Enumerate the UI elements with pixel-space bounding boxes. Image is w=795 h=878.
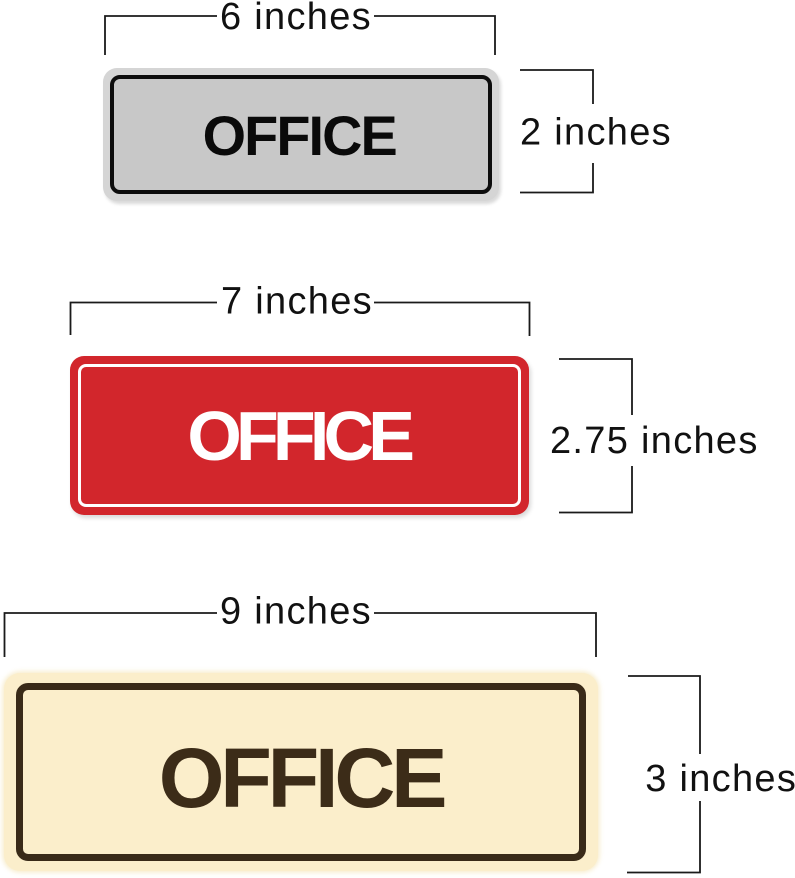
svg-text:2 inches: 2 inches — [520, 112, 672, 154]
svg-text:7 inches: 7 inches — [221, 281, 373, 323]
svg-text:9 inches: 9 inches — [220, 591, 372, 633]
svg-text:6 inches: 6 inches — [220, 0, 372, 38]
svg-text:2.75 inches: 2.75 inches — [550, 420, 759, 462]
svg-text:3 inches: 3 inches — [645, 758, 795, 800]
